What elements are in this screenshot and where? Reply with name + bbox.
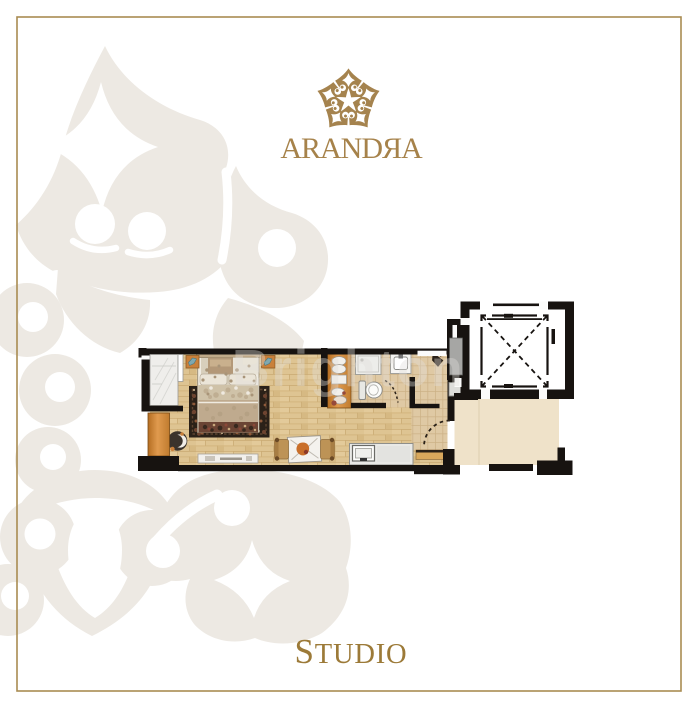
svg-text:Brighton: Brighton	[232, 340, 465, 398]
svg-text:ARANDЯA: ARANDЯA	[280, 132, 423, 165]
